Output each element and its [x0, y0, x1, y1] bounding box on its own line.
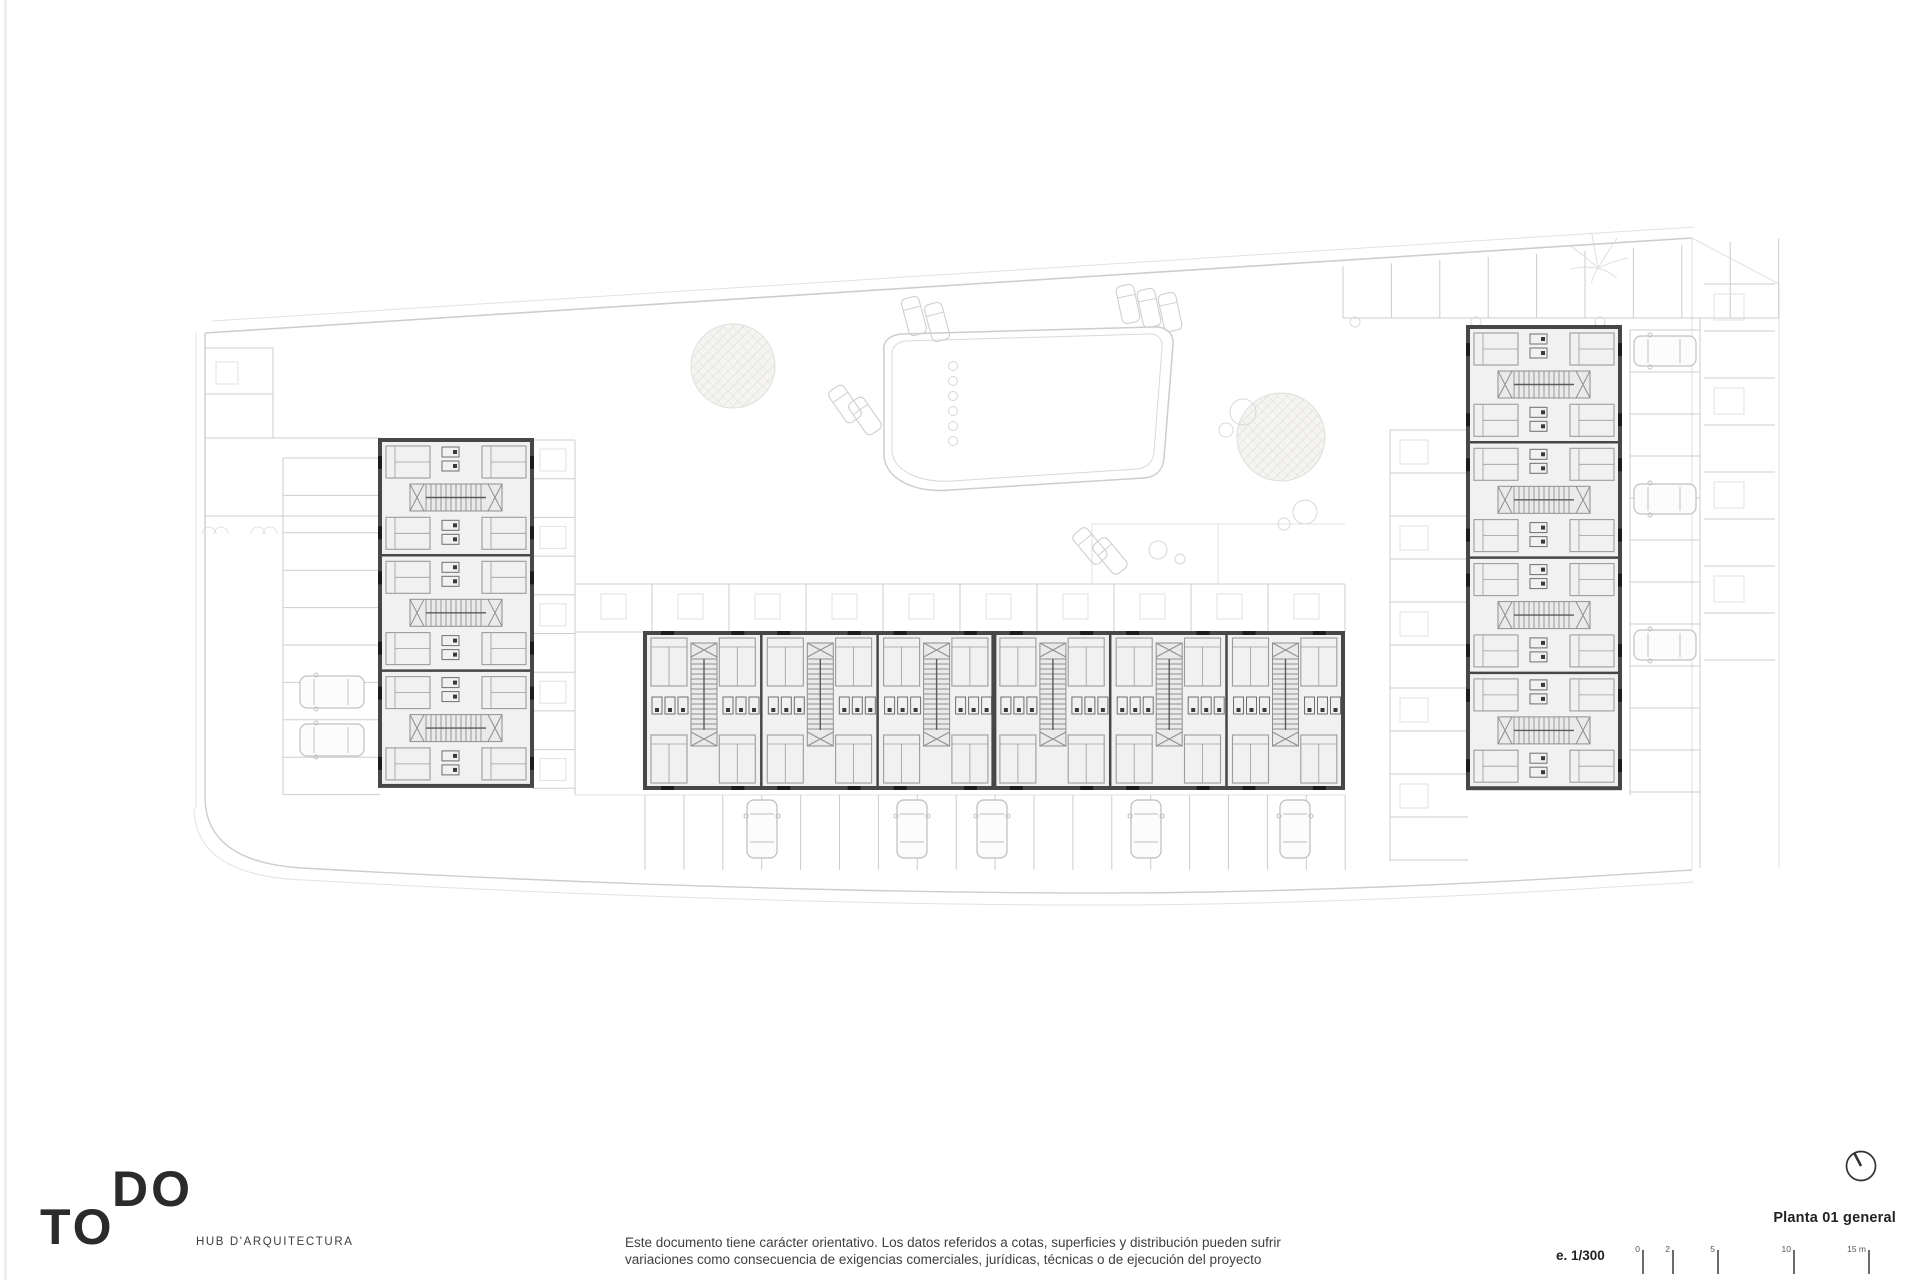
terraces-left-block [532, 440, 575, 795]
terraces-far-east [1704, 284, 1775, 660]
sheet-title: Planta 01 general [1773, 1210, 1896, 1226]
parking-east [1630, 318, 1700, 868]
parking-west [283, 458, 380, 795]
central-building [645, 631, 1343, 790]
scale-tick [1868, 1250, 1870, 1274]
scale-tick-label: 15 m [1847, 1244, 1868, 1254]
logo-word-to: TO [40, 1198, 115, 1256]
scale-tick-label: 5 [1710, 1244, 1717, 1254]
scale-tick-label: 0 [1635, 1244, 1642, 1254]
swimming-pool [884, 327, 1173, 491]
scale-tick [1672, 1250, 1674, 1274]
logo-tagline: HUB D'ARQUITECTURA [196, 1236, 354, 1248]
studio-logo: DO TO HUB D'ARQUITECTURA [40, 1160, 360, 1270]
disclaimer-line-2: variaciones como consecuencia de exigenc… [625, 1252, 1345, 1269]
logo-word-do: DO [112, 1160, 193, 1218]
scale-tick-label: 10 [1782, 1244, 1793, 1254]
scale-bar: 0251015 m [1642, 1244, 1892, 1278]
floor-plan-drawing [0, 0, 1920, 1280]
scale-label: e. 1/300 [1556, 1248, 1605, 1263]
terraces-right-block [1390, 430, 1468, 862]
scale-tick [1717, 1250, 1719, 1274]
terrace-band [575, 524, 1345, 632]
north-indicator-icon [1838, 1140, 1882, 1184]
disclaimer-text: Este documento tiene carácter orientativ… [625, 1235, 1345, 1268]
scale-tick [1793, 1250, 1795, 1274]
left-building [378, 440, 534, 786]
scale-tick-label: 2 [1665, 1244, 1672, 1254]
parking-south-cars [744, 800, 1313, 858]
scale-tick [1642, 1250, 1644, 1274]
disclaimer-line-1: Este documento tiene carácter orientativ… [625, 1235, 1345, 1252]
drawing-sheet: DO TO HUB D'ARQUITECTURA Este documento … [0, 0, 1920, 1280]
site-topleft-rooms [202, 348, 392, 534]
parking-south [575, 795, 1345, 870]
right-building [1466, 327, 1622, 788]
